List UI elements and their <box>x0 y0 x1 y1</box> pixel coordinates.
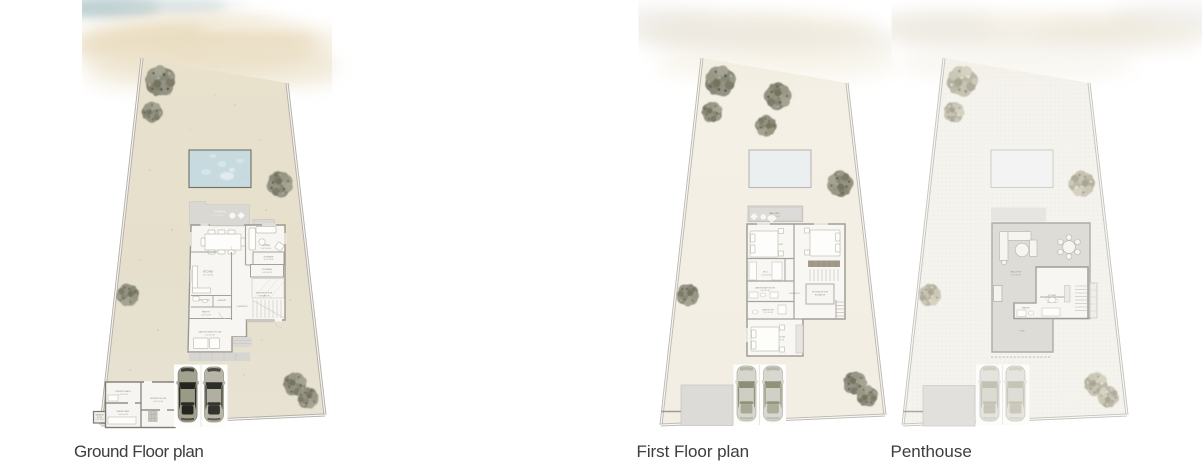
svg-text:0.0 X 0.0 M: 0.0 X 0.0 M <box>205 334 215 336</box>
svg-text:0.0 X 0.0 M: 0.0 X 0.0 M <box>262 272 272 274</box>
svg-text:Penthouse: Penthouse <box>891 442 972 461</box>
svg-text:0.0 X 0.0 M: 0.0 X 0.0 M <box>264 259 274 261</box>
svg-text:CORRIDOR: CORRIDOR <box>789 293 800 295</box>
svg-text:0.0 X 0.0 M: 0.0 X 0.0 M <box>201 314 211 316</box>
svg-text:0.0 X 0.0 M: 0.0 X 0.0 M <box>761 274 771 276</box>
svg-text:0.0 X 0.0 M: 0.0 X 0.0 M <box>118 414 128 416</box>
svg-text:LIVING: LIVING <box>262 245 270 247</box>
svg-text:PANTRY: PANTRY <box>1022 307 1031 310</box>
svg-text:DRIVER'S BATH: DRIVER'S BATH <box>115 390 131 393</box>
svg-text:LAUNDRY: LAUNDRY <box>217 299 227 302</box>
svg-text:PROVISION FOR: PROVISION FOR <box>256 293 273 295</box>
svg-text:PROVISION FOR: PROVISION FOR <box>812 292 828 294</box>
svg-text:0.0 X 0.0 M: 0.0 X 0.0 M <box>261 248 271 250</box>
svg-text:Ground Floor plan: Ground Floor plan <box>74 442 203 461</box>
svg-text:First Floor plan: First Floor plan <box>637 442 750 461</box>
svg-text:CORRIDOR: CORRIDOR <box>237 306 248 308</box>
svg-text:STORAGE: STORAGE <box>263 256 274 259</box>
svg-text:0.0 X 0.0 M: 0.0 X 0.0 M <box>1011 274 1021 276</box>
svg-text:0.0 X 0.0 M: 0.0 X 0.0 M <box>761 290 770 292</box>
svg-text:STORAGE: STORAGE <box>262 268 273 271</box>
svg-text:ELEVATOR: ELEVATOR <box>815 293 826 296</box>
svg-text:VOID: VOID <box>1019 331 1025 333</box>
svg-text:0.0 X 0.0 M: 0.0 X 0.0 M <box>764 312 773 314</box>
svg-text:W.I.C.: W.I.C. <box>763 272 769 274</box>
svg-text:0.0 X 0.0 M: 0.0 X 0.0 M <box>153 401 163 403</box>
svg-text:ROOM: ROOM <box>97 417 103 419</box>
svg-text:TERRACE: TERRACE <box>214 211 226 214</box>
svg-text:ELEVATOR: ELEVATOR <box>259 294 270 297</box>
svg-text:MAJLIS (GUEST ROOM): MAJLIS (GUEST ROOM) <box>199 331 222 334</box>
svg-text:KITCHEN: KITCHEN <box>203 272 213 274</box>
svg-text:BALCONY: BALCONY <box>1011 271 1022 274</box>
svg-text:0.0 X 0.0 M: 0.0 X 0.0 M <box>213 215 224 217</box>
svg-text:DRIVER'S ROOM: DRIVER'S ROOM <box>150 398 166 400</box>
svg-text:0.0 X 0.0 M: 0.0 X 0.0 M <box>118 394 128 396</box>
svg-text:PANTRY: PANTRY <box>202 311 211 314</box>
svg-text:0.0 X 0.0 M: 0.0 X 0.0 M <box>96 419 104 421</box>
svg-text:WATER TANK: WATER TANK <box>117 410 130 413</box>
svg-text:0.0 X 0.0 M: 0.0 X 0.0 M <box>203 274 213 276</box>
svg-text:BALCONY: BALCONY <box>769 212 780 215</box>
svg-text:KITCHEN: KITCHEN <box>1048 295 1057 297</box>
